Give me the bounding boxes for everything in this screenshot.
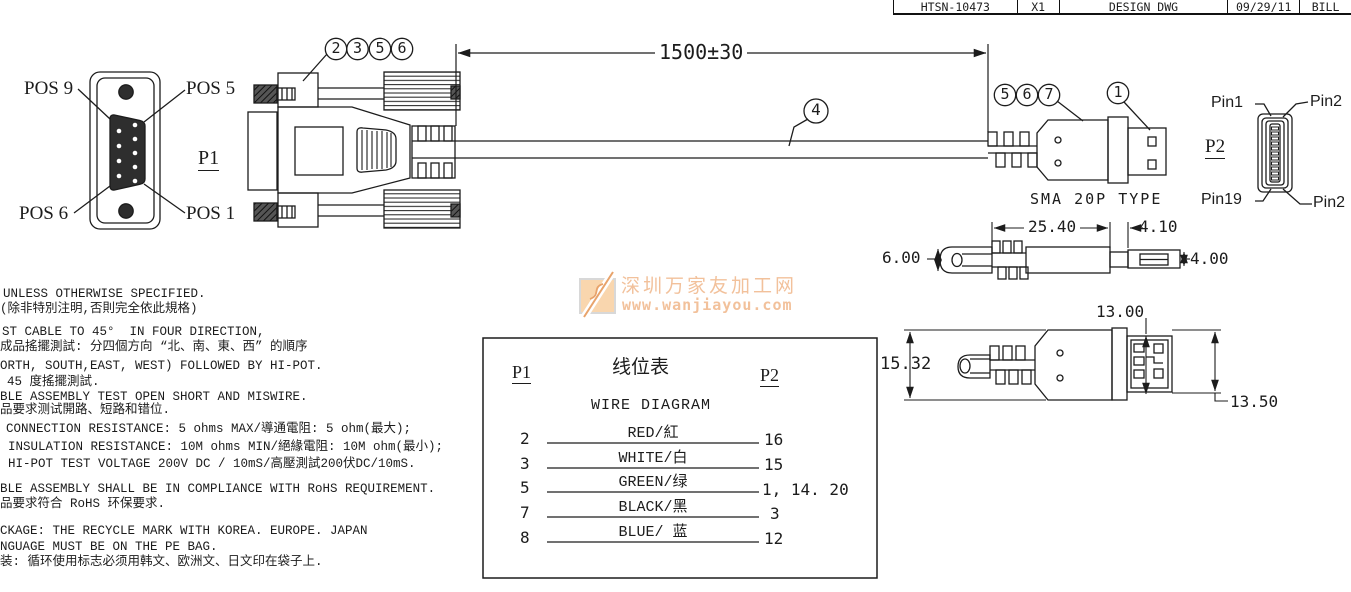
note-line: 成品搖擺測試: 分四個方向 “北、南、東、西” 的順序 (0, 341, 308, 354)
balloon-3: 3 (347, 41, 369, 57)
sma-type-label: SMA 20P TYPE (1030, 192, 1162, 208)
title-block-author: BILL (1300, 0, 1351, 13)
dim-tip-height: 13.00 (1096, 304, 1144, 321)
cable-assembly-drawing: HTSN-10473 X1 DESIGN DWG 09/29/11 BILL P… (0, 0, 1351, 592)
wire-row-color: WHITE/白 (547, 451, 759, 467)
note-line: CONNECTION RESISTANCE: 5 ohms MAX/導通電阻: … (6, 423, 411, 436)
p1-pos1-label: POS 1 (186, 204, 235, 224)
wire-row-p2-pin: 12 (764, 531, 783, 548)
note-line: INSULATION RESISTANCE: 10M ohms MIN/絕緣電阻… (8, 441, 443, 454)
wire-row-p1-pin: 2 (520, 431, 530, 448)
dim-neck-length: 4.10 (1139, 219, 1178, 236)
sma-bottom-dimension-view (904, 318, 1228, 401)
p1-pos5-label: POS 5 (186, 79, 235, 99)
note-line: 品要求符合 RoHS 环保要求. (0, 498, 165, 511)
wire-row-color: BLUE/ 蓝 (547, 525, 759, 541)
p2-connector-label: P2 (1205, 137, 1225, 159)
watermark-site-name: 深圳万家友加工网 (621, 277, 797, 297)
wire-row-p1-pin: 3 (520, 456, 530, 473)
balloon-5: 5 (369, 41, 391, 57)
wire-row-p2-pin: 16 (764, 432, 783, 449)
wire-table-p1-header: P1 (512, 363, 531, 384)
wire-table-title-cn: 线位表 (612, 358, 669, 378)
watermark-url: www.wanjiayou.com (622, 298, 793, 314)
watermark-logo (580, 272, 615, 317)
dim-tip-diameter: 4.00 (1190, 251, 1229, 268)
note-line: ST CABLE TO 45° IN FOUR DIRECTION, (2, 326, 265, 339)
p1-face-view (74, 72, 185, 229)
p2-pin19-label: Pin19 (1201, 192, 1242, 209)
wire-row-color: GREEN/绿 (547, 475, 759, 491)
p2-pin2-top-label: Pin2 (1310, 94, 1342, 111)
dim-cable-length: 1500±30 (655, 42, 747, 63)
p1-connector-label: P1 (198, 148, 219, 171)
wire-row-p1-pin: 7 (520, 505, 530, 522)
dim-body-length: 25.40 (1024, 219, 1080, 236)
wire-table-title-en: WIRE DIAGRAM (591, 398, 711, 414)
balloon-7-sma: 7 (1038, 87, 1060, 103)
db9-side-view (248, 72, 460, 228)
wire-row-p1-pin: 5 (520, 480, 530, 497)
p2-face-view (1255, 102, 1312, 204)
note-line: CKAGE: THE RECYCLE MARK WITH KOREA. EURO… (0, 525, 368, 538)
sma-connector-side-view (988, 117, 1166, 183)
p1-pos9-label: POS 9 (24, 79, 73, 99)
wire-row-color: BLACK/黑 (547, 500, 759, 516)
dim-cable-diameter: 6.00 (882, 250, 921, 267)
wire-row-p1-pin: 8 (520, 530, 530, 547)
p2-pin1-label: Pin1 (1211, 95, 1243, 112)
note-line: (除非特別注明,否則完全依此規格) (0, 303, 198, 316)
p2-pin2-bottom-label: Pin2 (1313, 195, 1345, 212)
note-line: ORTH, SOUTH,EAST, WEST) FOLLOWED BY HI-P… (0, 360, 323, 373)
wire-row-p2-pin: 1, 14. 20 (762, 482, 849, 499)
balloon-2: 2 (325, 41, 347, 57)
title-block-part-number: HTSN-10473 (894, 0, 1018, 13)
balloon-4-cable: 4 (804, 102, 828, 119)
note-line: 装: 循环使用标志必须用韩文、欧洲文、日文印在袋子上. (0, 556, 323, 569)
note-line: NGUAGE MUST BE ON THE PE BAG. (0, 541, 218, 554)
wire-row-p2-pin: 15 (764, 457, 783, 474)
balloon-1-tip: 1 (1107, 85, 1129, 101)
wire-table-p2-header: P2 (760, 366, 779, 387)
balloon-6-sma: 6 (1016, 87, 1038, 103)
note-line: UNLESS OTHERWISE SPECIFIED. (3, 288, 206, 301)
balloon-6: 6 (391, 41, 413, 57)
note-line: HI-POT TEST VOLTAGE 200V DC / 10mS/高壓測試2… (8, 458, 416, 471)
dim-body-height: 15.32 (880, 356, 931, 374)
cable-run (455, 141, 988, 158)
wire-row-color: RED/紅 (547, 426, 759, 442)
title-block-revision: X1 (1018, 0, 1060, 13)
title-block-doc-type: DESIGN DWG (1060, 0, 1229, 13)
note-line: BLE ASSEMBLY SHALL BE IN COMPLIANCE WITH… (0, 483, 435, 496)
balloon-5-sma: 5 (994, 87, 1016, 103)
title-block-date: 09/29/11 (1228, 0, 1300, 13)
note-line: 品要求测试開路、短路和错位. (0, 404, 170, 417)
wire-row-p2-pin: 3 (770, 506, 780, 523)
dim-overall-height: 13.50 (1230, 394, 1278, 411)
p1-pos6-label: POS 6 (19, 204, 68, 224)
note-line: 45 度搖擺測試. (7, 376, 100, 389)
title-block: HTSN-10473 X1 DESIGN DWG 09/29/11 BILL (893, 0, 1351, 15)
